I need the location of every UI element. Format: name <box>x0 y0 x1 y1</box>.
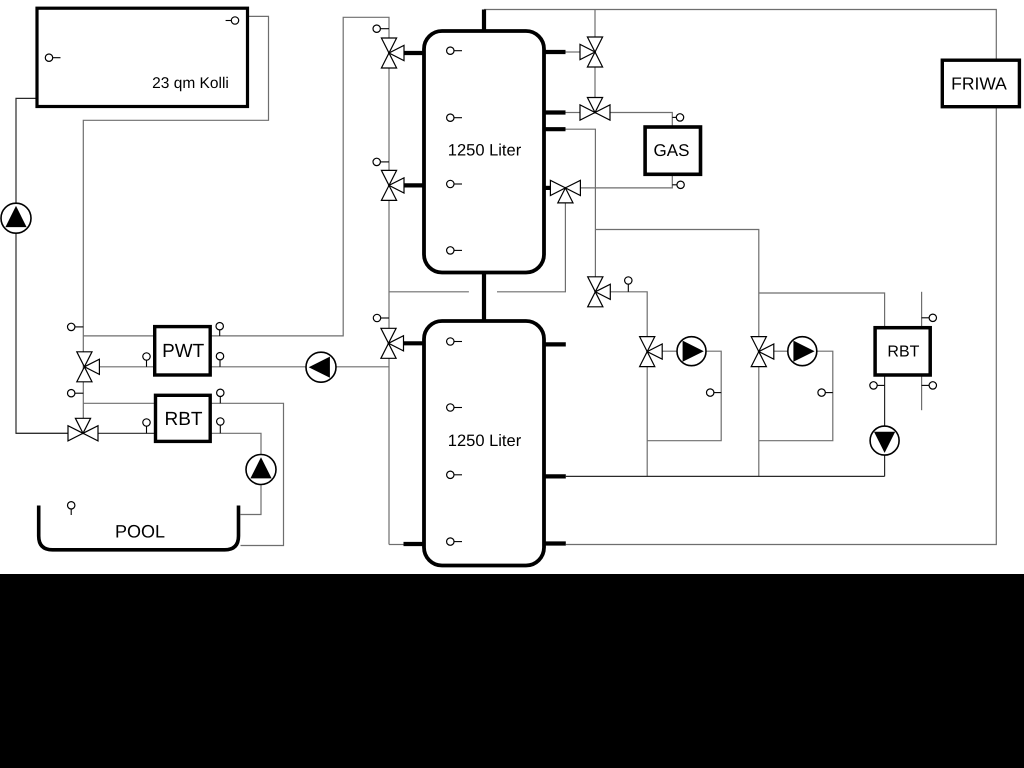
svg-text:RBT: RBT <box>887 344 919 361</box>
svg-text:1250 Liter: 1250 Liter <box>448 142 522 160</box>
svg-text:RBT: RBT <box>165 409 203 430</box>
svg-text:1250 Liter: 1250 Liter <box>448 432 522 450</box>
svg-text:FRIWA: FRIWA <box>951 73 1007 93</box>
svg-text:POOL: POOL <box>115 522 165 542</box>
svg-text:23 qm Kolli: 23 qm Kolli <box>152 75 229 92</box>
svg-text:GAS: GAS <box>654 141 690 160</box>
svg-text:PWT: PWT <box>162 341 205 362</box>
